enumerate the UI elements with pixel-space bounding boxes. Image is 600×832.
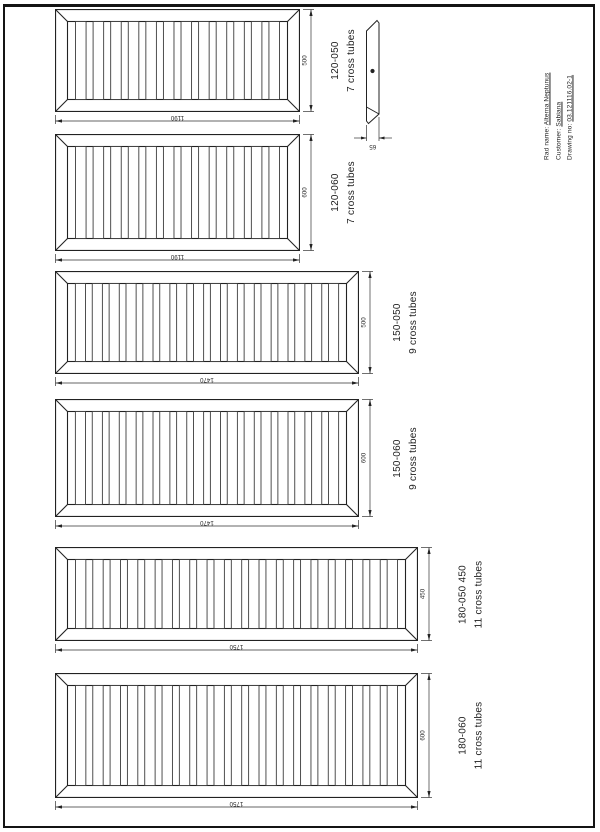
- panel-tube-count: 11 cross tubes: [471, 560, 487, 628]
- length-dimension: 1470: [200, 519, 214, 526]
- panel-model: 150-060: [390, 427, 406, 490]
- customer-value: Sabiana: [555, 101, 562, 126]
- panel-model: 180-050 450: [456, 560, 472, 628]
- height-dimension: 600: [420, 730, 427, 741]
- cross-tubes: [75, 560, 397, 629]
- panel-frame: [56, 10, 300, 112]
- height-dimension: 500: [302, 55, 309, 66]
- cross-tubes: [76, 147, 280, 239]
- profile-width-dimension: 65: [369, 143, 376, 150]
- title-block: Rad name: Alterna Neptunus Customer: Sab…: [532, 36, 586, 196]
- panel-frame: [56, 135, 300, 251]
- height-dimension: 600: [302, 187, 309, 198]
- rad-name-label: Rad name:: [544, 127, 551, 160]
- title-block-text: Rad name: Alterna Neptunus Customer: Sab…: [542, 72, 577, 159]
- panels-layer: 1190500120-0507 cross tubes1190600120-06…: [0, 0, 600, 832]
- height-dimension: 600: [361, 452, 368, 463]
- profile-dimension-lines: [354, 117, 392, 141]
- panel-tube-count: 9 cross tubes: [405, 427, 421, 490]
- drawing-no-value: 03.121116.02-1: [567, 75, 574, 122]
- panel-model: 180-060: [456, 702, 472, 770]
- drawing-sheet: 1190500120-0507 cross tubes1190600120-06…: [0, 0, 600, 832]
- panel-model: 120-050: [328, 29, 344, 92]
- length-dimension: 1470: [200, 376, 214, 383]
- panel-tube-count: 11 cross tubes: [471, 702, 487, 770]
- cross-tubes: [75, 412, 338, 505]
- length-dimension: 1750: [229, 643, 243, 650]
- radiator-drawing-120-050: 1190500: [55, 9, 342, 128]
- length-dimension: 1190: [170, 253, 184, 260]
- cross-tubes: [75, 686, 397, 786]
- rad-name-value: Alterna Neptunus: [544, 72, 551, 125]
- title-block-row: Rad name: Alterna Neptunus: [542, 72, 554, 159]
- tube-profile-view: 65: [352, 8, 402, 158]
- tube-hole-icon: [370, 69, 374, 73]
- panel-tube-count: 7 cross tubes: [343, 161, 359, 224]
- panel-label-180-060: 180-06011 cross tubes: [452, 673, 490, 798]
- panel-tube-count: 9 cross tubes: [405, 291, 421, 354]
- panel-label-180-050-450: 180-050 45011 cross tubes: [452, 547, 490, 641]
- radiator-drawing-150-050: 1470500: [55, 271, 401, 390]
- height-dimension: 500: [361, 317, 368, 328]
- panel-label-150-050: 150-0509 cross tubes: [386, 271, 424, 374]
- length-dimension: 1190: [170, 114, 184, 121]
- drawing-no-label: Drawing no:: [567, 123, 574, 159]
- customer-label: Customer:: [555, 128, 562, 159]
- panel-label-150-060: 150-0609 cross tubes: [386, 399, 424, 517]
- profile-dimension-arrows: [361, 137, 385, 140]
- radiator-drawing-180-050-450: 1750450: [55, 547, 460, 657]
- cross-tubes: [75, 284, 338, 362]
- radiator-drawing-180-060: 1750600: [55, 673, 460, 814]
- radiator-drawing-150-060: 1470600: [55, 399, 401, 533]
- radiator-drawing-120-060: 1190600: [55, 134, 342, 267]
- cross-tubes: [76, 22, 280, 100]
- length-dimension: 1750: [229, 800, 243, 807]
- height-dimension: 450: [420, 588, 427, 599]
- panel-model: 120-060: [328, 161, 344, 224]
- title-block-row: Customer: Sabiana: [553, 72, 565, 159]
- title-block-row: Drawing no: 03.121116.02-1: [565, 72, 577, 159]
- panel-model: 150-050: [390, 291, 406, 354]
